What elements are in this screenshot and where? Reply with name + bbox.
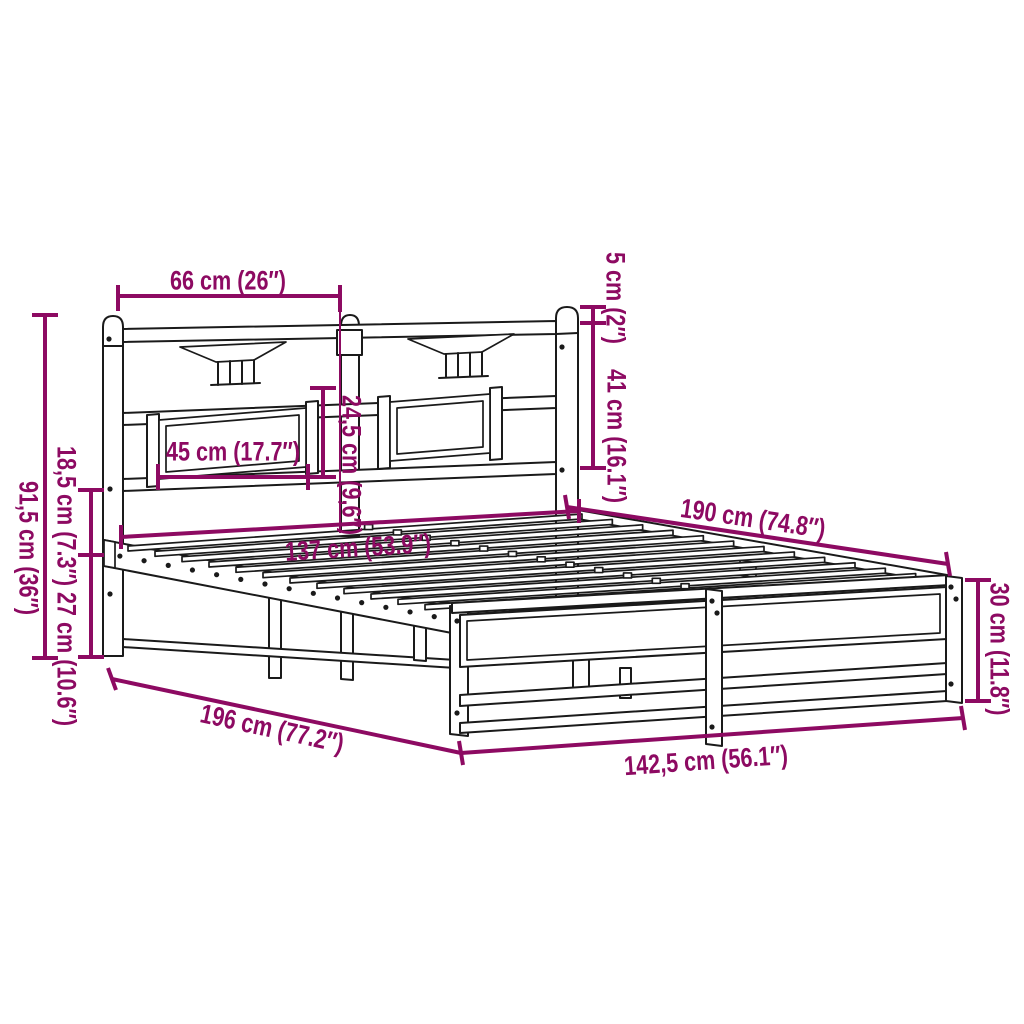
dimension-diagram: 66 cm (26″) 5 cm (2″) 41 cm (16.1″) 24,5…	[0, 0, 1024, 1024]
dim-label-27cm: 27 cm (10.6″)	[51, 592, 82, 726]
rivet-dot	[214, 572, 219, 577]
slat-clip	[681, 584, 689, 589]
rivet-dot	[454, 618, 459, 623]
rivet-dot	[953, 596, 958, 601]
rivet-dot	[709, 724, 714, 729]
slat-clip	[508, 551, 516, 556]
dim-label-91-5cm: 91,5 cm (36″)	[13, 481, 44, 615]
headboard-left-fan	[180, 342, 286, 385]
tick	[946, 552, 950, 576]
dim-label-18-5cm: 18,5 cm (7.3″)	[51, 446, 82, 586]
rivet-dot	[432, 614, 437, 619]
rivet-dot	[166, 563, 171, 568]
slat-clip	[652, 578, 660, 583]
screw-dot	[559, 344, 564, 349]
rivet-dot	[141, 558, 146, 563]
slat-clip	[451, 541, 459, 546]
rivet-dot	[948, 681, 953, 686]
slat-clip	[480, 546, 488, 551]
side-stretcher-rail	[123, 639, 456, 668]
rivet-dot	[359, 600, 364, 605]
dim-label-66cm: 66 cm (26″)	[170, 266, 286, 297]
under-bed-leg	[269, 598, 281, 678]
slat-clip	[566, 562, 574, 567]
rivet-dot	[407, 609, 412, 614]
rivet-dot	[311, 591, 316, 596]
slat-clip	[595, 568, 603, 573]
right-post-cap-line	[556, 333, 578, 334]
screw-dot	[559, 467, 564, 472]
slat-clip	[537, 557, 545, 562]
rivet-dot	[238, 577, 243, 582]
slat-clip	[624, 573, 632, 578]
rivet-dot	[383, 605, 388, 610]
tick	[961, 706, 965, 730]
screw-dot	[107, 591, 112, 596]
footboard-center-support	[706, 589, 722, 746]
bed-frame-drawing	[0, 0, 1024, 1024]
left-side-rail-end-cap	[104, 540, 115, 568]
footboard-right-leg	[946, 576, 962, 703]
dim-label-45cm: 45 cm (17.7″)	[166, 437, 300, 468]
footboard	[452, 575, 962, 746]
headboard-right-fan	[408, 334, 514, 378]
headboard-left-post	[103, 316, 123, 656]
dim-label-5cm: 5 cm (2″)	[600, 252, 631, 344]
rivet-dot	[948, 584, 953, 589]
headboard-right-panel	[378, 387, 502, 469]
rivet-dot	[454, 710, 459, 715]
rivet-dot	[190, 567, 195, 572]
rivet-dot	[335, 595, 340, 600]
dim-label-24-5cm: 24,5 cm (9,6″)	[336, 395, 367, 535]
rivet-dot	[117, 553, 122, 558]
dim-label-41cm: 41 cm (16.1″)	[601, 369, 632, 503]
rivet-dot	[709, 598, 714, 603]
dim-label-30cm: 30 cm (11.8″)	[984, 583, 1015, 716]
screw-dot	[107, 486, 112, 491]
rivet-dot	[287, 586, 292, 591]
screw-dot	[106, 336, 111, 341]
rivet-dot	[262, 581, 267, 586]
rivet-dot	[714, 610, 719, 615]
